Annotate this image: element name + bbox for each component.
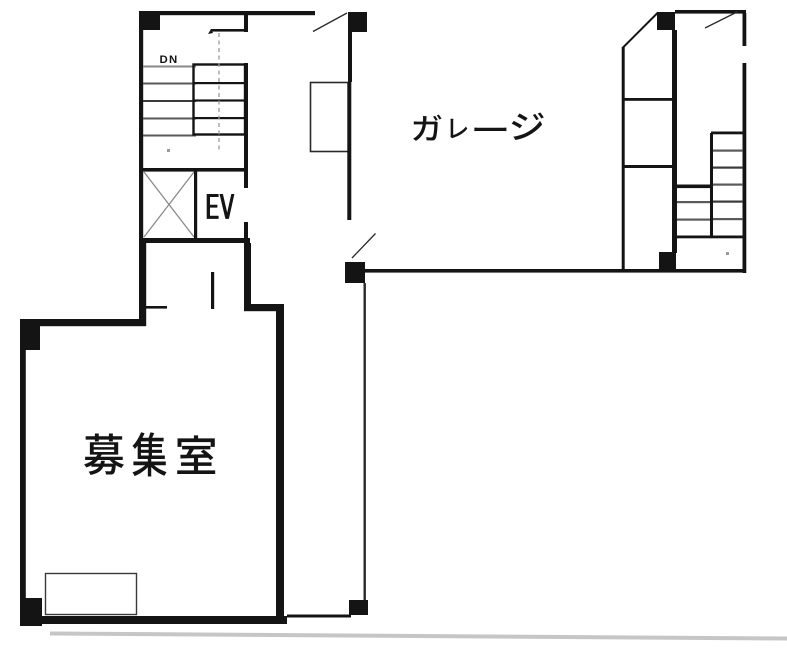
svg-text:DN: DN bbox=[160, 54, 179, 66]
